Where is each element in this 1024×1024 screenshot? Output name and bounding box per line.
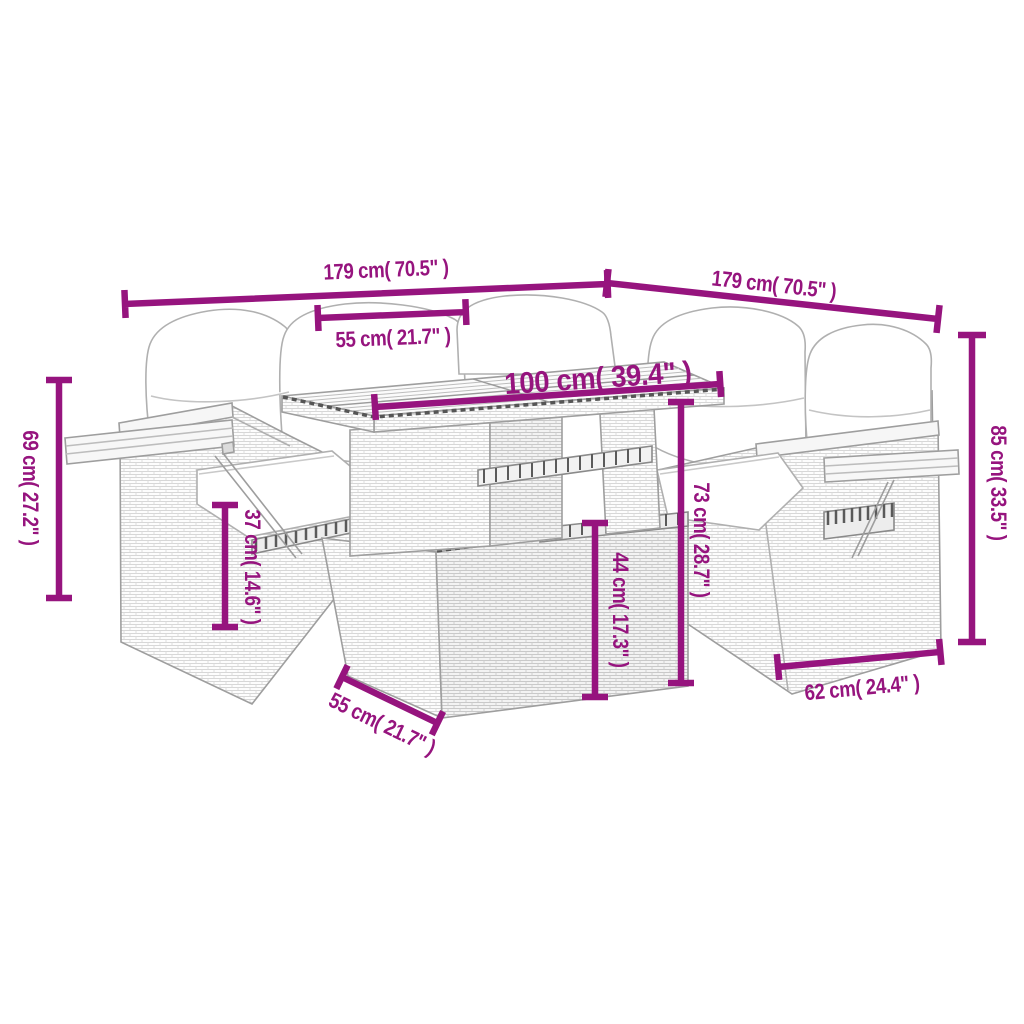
dim-label-total-height: 85 cm( 33.5" ) (987, 425, 1009, 540)
dim-label-table-lower-height: 44 cm( 17.3" ) (609, 552, 631, 667)
dim-label-left-height: 69 cm( 27.2" ) (19, 430, 41, 545)
sofa-set-drawing (65, 295, 959, 718)
dim-label-table-height: 73 cm( 28.7" ) (690, 482, 712, 597)
dim-label-width-left: 179 cm( 70.5" ) (323, 256, 449, 283)
furniture-illustration (0, 0, 1024, 1024)
dim-line-total-height (958, 335, 986, 642)
dim-line-left-height (46, 380, 72, 598)
dim-label-seat-width: 55 cm( 21.7" ) (335, 325, 451, 352)
product-dimension-diagram: 179 cm( 70.5" ) 179 cm( 70.5" ) 55 cm( 2… (0, 0, 1024, 1024)
dim-label-seat-height: 37 cm( 14.6" ) (241, 509, 263, 624)
